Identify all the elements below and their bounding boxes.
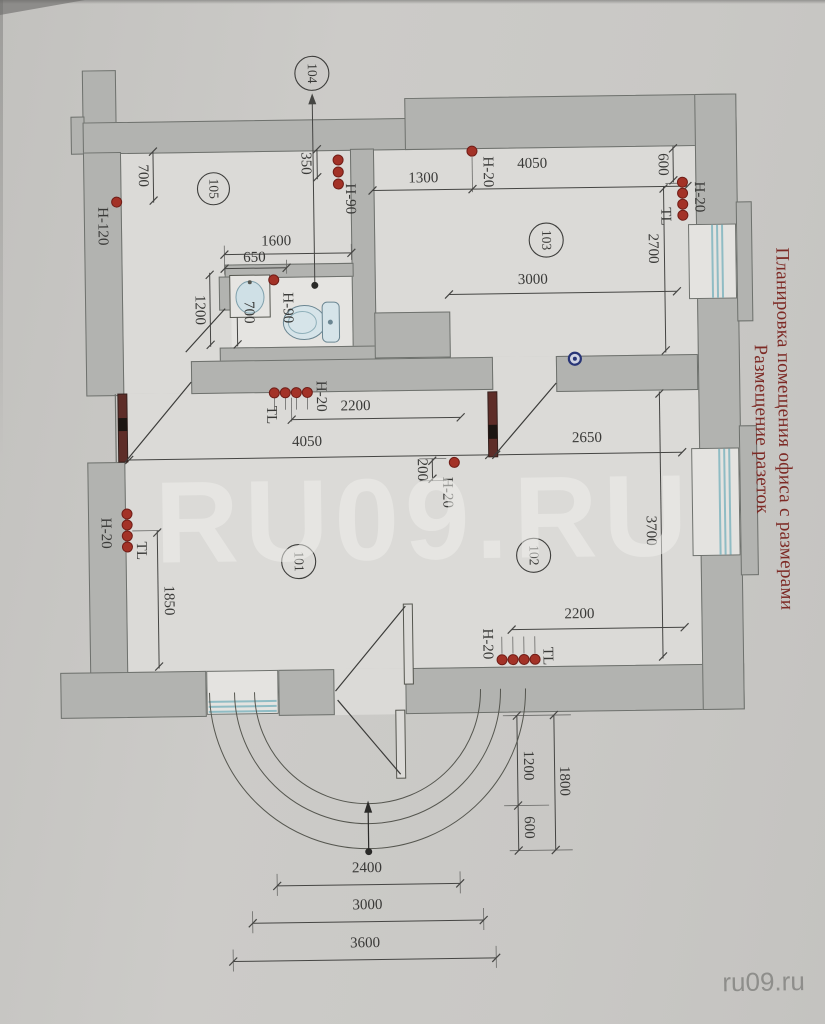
entrance-door-leaves bbox=[334, 604, 414, 779]
dim-600-entrance: 600 bbox=[520, 816, 537, 839]
entrance-arrow bbox=[364, 801, 373, 856]
photo-top-edge-shadow bbox=[0, 0, 825, 4]
room-number-104: 104 bbox=[304, 63, 320, 83]
socket-label-h90-bath: Н-90 bbox=[278, 292, 295, 323]
dim-700-top-left: 700 bbox=[134, 164, 151, 187]
dim-1200-bath: 1200 bbox=[190, 295, 207, 325]
socket-dots bbox=[111, 143, 694, 670]
socket-label-h20-102: Н-20 bbox=[478, 628, 495, 659]
socket-label-h20-101: Н-20 bbox=[97, 518, 114, 549]
dim-2200-102: 2200 bbox=[564, 606, 594, 623]
junction-box bbox=[569, 353, 581, 365]
dim-3600-bottom: 3600 bbox=[350, 935, 380, 952]
dim-2650: 2650 bbox=[572, 430, 602, 447]
socket-label-h20-103-top: Н-20 bbox=[479, 156, 496, 187]
dim-1300: 1300 bbox=[408, 170, 438, 187]
watermark-small: ru09.ru bbox=[722, 966, 805, 998]
dim-1200-entrance: 1200 bbox=[519, 750, 536, 780]
socket-label-h90-105: Н-90 bbox=[341, 183, 358, 214]
room-number-105: 105 bbox=[205, 179, 221, 199]
dim-2700: 2700 bbox=[644, 234, 661, 264]
dim-4050-103: 4050 bbox=[517, 156, 547, 173]
door-room-102 bbox=[488, 383, 558, 457]
watermark-large: RU09.RU bbox=[154, 448, 694, 590]
photographed-floor-plan: 700 350 1600 650 1200 700 1300 4050 3000… bbox=[0, 0, 825, 1024]
door-left-exterior bbox=[115, 382, 192, 462]
socket-label-tl-hall: TL bbox=[262, 406, 279, 425]
room-104-leader bbox=[308, 93, 319, 289]
socket-label-tl-103: TL bbox=[656, 207, 673, 226]
socket-label-tl-101: TL bbox=[132, 542, 149, 561]
dim-350: 350 bbox=[296, 152, 313, 175]
dim-650: 650 bbox=[243, 250, 266, 267]
socket-label-tl-102: TL bbox=[538, 647, 555, 666]
dim-4050-hall: 4050 bbox=[292, 434, 322, 451]
room-number-103: 103 bbox=[538, 230, 554, 250]
dim-3000-103: 3000 bbox=[518, 272, 548, 289]
dim-1600: 1600 bbox=[261, 233, 291, 250]
photo-left-edge-shadow bbox=[0, 0, 3, 461]
socket-label-h20-103-right: Н-20 bbox=[690, 181, 707, 212]
dim-2200-hall: 2200 bbox=[340, 398, 370, 415]
drawing-sheet: 700 350 1600 650 1200 700 1300 4050 3000… bbox=[0, 0, 825, 1024]
dim-600-103: 600 bbox=[654, 153, 671, 176]
dim-3000-bottom: 3000 bbox=[352, 897, 382, 914]
dim-700-bath: 700 bbox=[240, 301, 257, 324]
dim-1800-entrance: 1800 bbox=[555, 766, 572, 796]
dim-1850: 1850 bbox=[160, 585, 177, 615]
socket-label-h120: Н-120 bbox=[93, 207, 111, 246]
socket-label-h20-hall: Н-20 bbox=[312, 381, 329, 412]
dim-2400-bottom: 2400 bbox=[352, 860, 382, 877]
drawing-title: Планировка помещения офиса с размерами Р… bbox=[747, 190, 800, 669]
